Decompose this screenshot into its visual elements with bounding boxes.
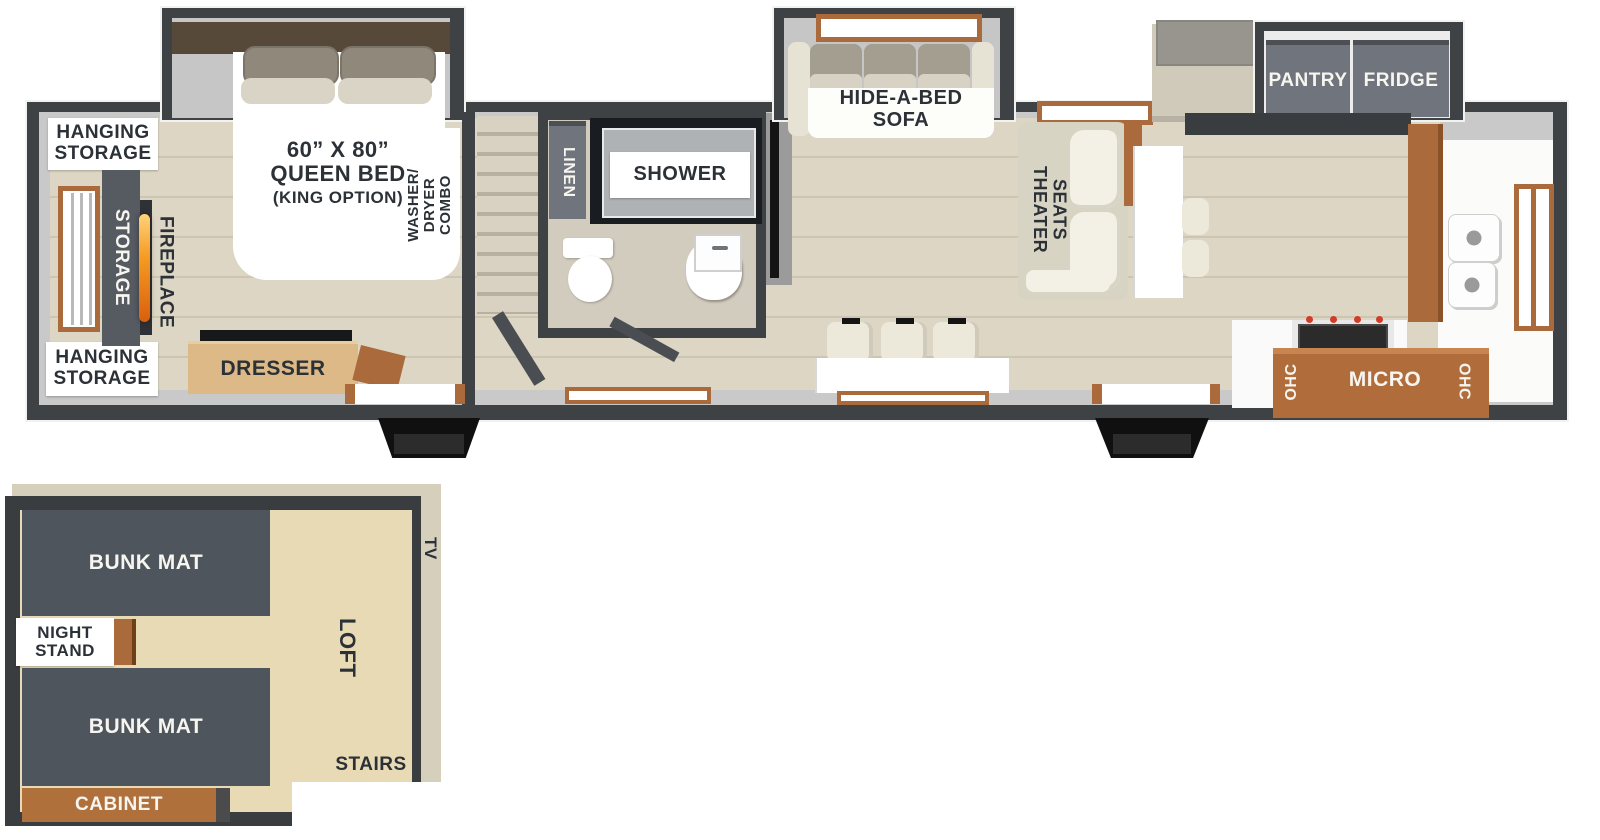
kitchen-sink-lower <box>1448 262 1496 308</box>
stool-base <box>896 318 914 324</box>
entry-step <box>378 418 480 458</box>
hanging-storage-top-label: HANGING STORAGE <box>48 118 158 170</box>
bed-pillow <box>338 78 432 104</box>
kitchen-window <box>1514 184 1554 331</box>
loft-stairs <box>477 116 539 314</box>
loft-edge-top <box>12 484 441 496</box>
dining-counter <box>817 358 1009 393</box>
fireplace-flame <box>139 214 150 322</box>
sofa-armrest <box>788 42 810 136</box>
ohc-left-label: OHC <box>1282 356 1302 408</box>
floor-plan-page: 60” X 80” QUEEN BED (KING OPTION) WASHER… <box>0 0 1600 840</box>
bar-stool <box>881 322 927 362</box>
window-blinds <box>65 193 93 325</box>
loft-label: LOFT <box>332 610 362 686</box>
stool-base <box>842 318 860 324</box>
loft-floor-plan: BUNK MAT NIGHT STAND BUNK MAT CABINET LO… <box>0 470 470 840</box>
night-stand <box>114 619 136 665</box>
bed-option-label: (KING OPTION) <box>248 188 428 208</box>
theater-cushion <box>1070 130 1120 208</box>
living-tv <box>770 120 779 278</box>
bunk-mat-bottom: BUNK MAT <box>22 668 270 786</box>
shower-label: SHOWER <box>610 152 750 198</box>
fridge: FRIDGE <box>1353 40 1449 117</box>
bunk-mat-top: BUNK MAT <box>22 510 270 616</box>
dresser: DRESSER <box>188 341 358 394</box>
bedroom-wall <box>462 112 475 405</box>
island-stool-cushion <box>1182 240 1209 277</box>
main-floor-plan: 60” X 80” QUEEN BED (KING OPTION) WASHER… <box>0 0 1600 470</box>
washer-dryer-label: WASHER/ DRYER COMBO <box>403 140 457 270</box>
sink-drain <box>1465 278 1480 293</box>
main-entry-door <box>1092 384 1220 404</box>
sink-basin <box>694 234 742 272</box>
sink-drain <box>1467 231 1482 246</box>
linen-closet: LINEN <box>549 121 586 219</box>
bedroom-window <box>58 186 100 332</box>
step-tread <box>1113 434 1191 454</box>
loft-stairs-cutout <box>292 782 443 826</box>
theater-seats-label: THEATER SEATS <box>1026 140 1072 280</box>
bed-name-label: QUEEN BED <box>248 162 428 186</box>
kitchen-slideout: PANTRY FRIDGE <box>1253 20 1461 118</box>
kitchen-tall-cabinet <box>1408 124 1443 322</box>
ohc-right-label: OHC <box>1452 356 1474 408</box>
loft-tv-label: TV <box>419 526 441 570</box>
micro-label: MICRO <box>1325 364 1445 396</box>
burner-knob <box>1306 316 1313 323</box>
cooktop-grate <box>1298 324 1388 350</box>
loft-stairs-label: STAIRS <box>328 754 414 776</box>
kitchen-island-tall <box>1133 146 1183 298</box>
night-stand-label: NIGHT STAND <box>16 618 114 666</box>
burner-knob <box>1330 316 1337 323</box>
toilet-tank <box>563 238 613 258</box>
fireplace-label: FIREPLACE <box>152 196 178 348</box>
step-tread <box>394 434 463 454</box>
stool-base <box>948 318 966 324</box>
loft-cabinet-end <box>216 788 230 822</box>
bottom-window <box>565 387 711 404</box>
burner-knob <box>1376 316 1383 323</box>
storage-label: STORAGE <box>107 182 135 334</box>
sink-faucet <box>712 246 728 250</box>
bottom-window <box>837 391 989 405</box>
toilet-bowl <box>568 256 612 302</box>
sofa-window <box>816 14 982 42</box>
bar-stool <box>933 322 979 362</box>
kitchen-slideout-cabinet-top <box>1156 20 1256 66</box>
bed-pillow <box>241 78 335 104</box>
burner-knob <box>1354 316 1361 323</box>
hanging-storage-bottom-label: HANGING STORAGE <box>46 342 158 396</box>
bed-size-label: 60” X 80” <box>248 138 428 162</box>
kitchen-counter-dark <box>1185 113 1411 135</box>
pantry: PANTRY <box>1266 40 1350 117</box>
sofa-label: HIDE-A-BED SOFA <box>812 84 990 136</box>
window-mullion <box>1531 189 1536 326</box>
island-stool-cushion <box>1182 198 1209 235</box>
loft-cabinet: CABINET <box>22 788 216 822</box>
bedroom-entry-door <box>345 384 465 404</box>
bar-stool <box>827 322 873 362</box>
kitchen-sink-upper <box>1448 214 1500 262</box>
entry-step <box>1095 418 1209 458</box>
